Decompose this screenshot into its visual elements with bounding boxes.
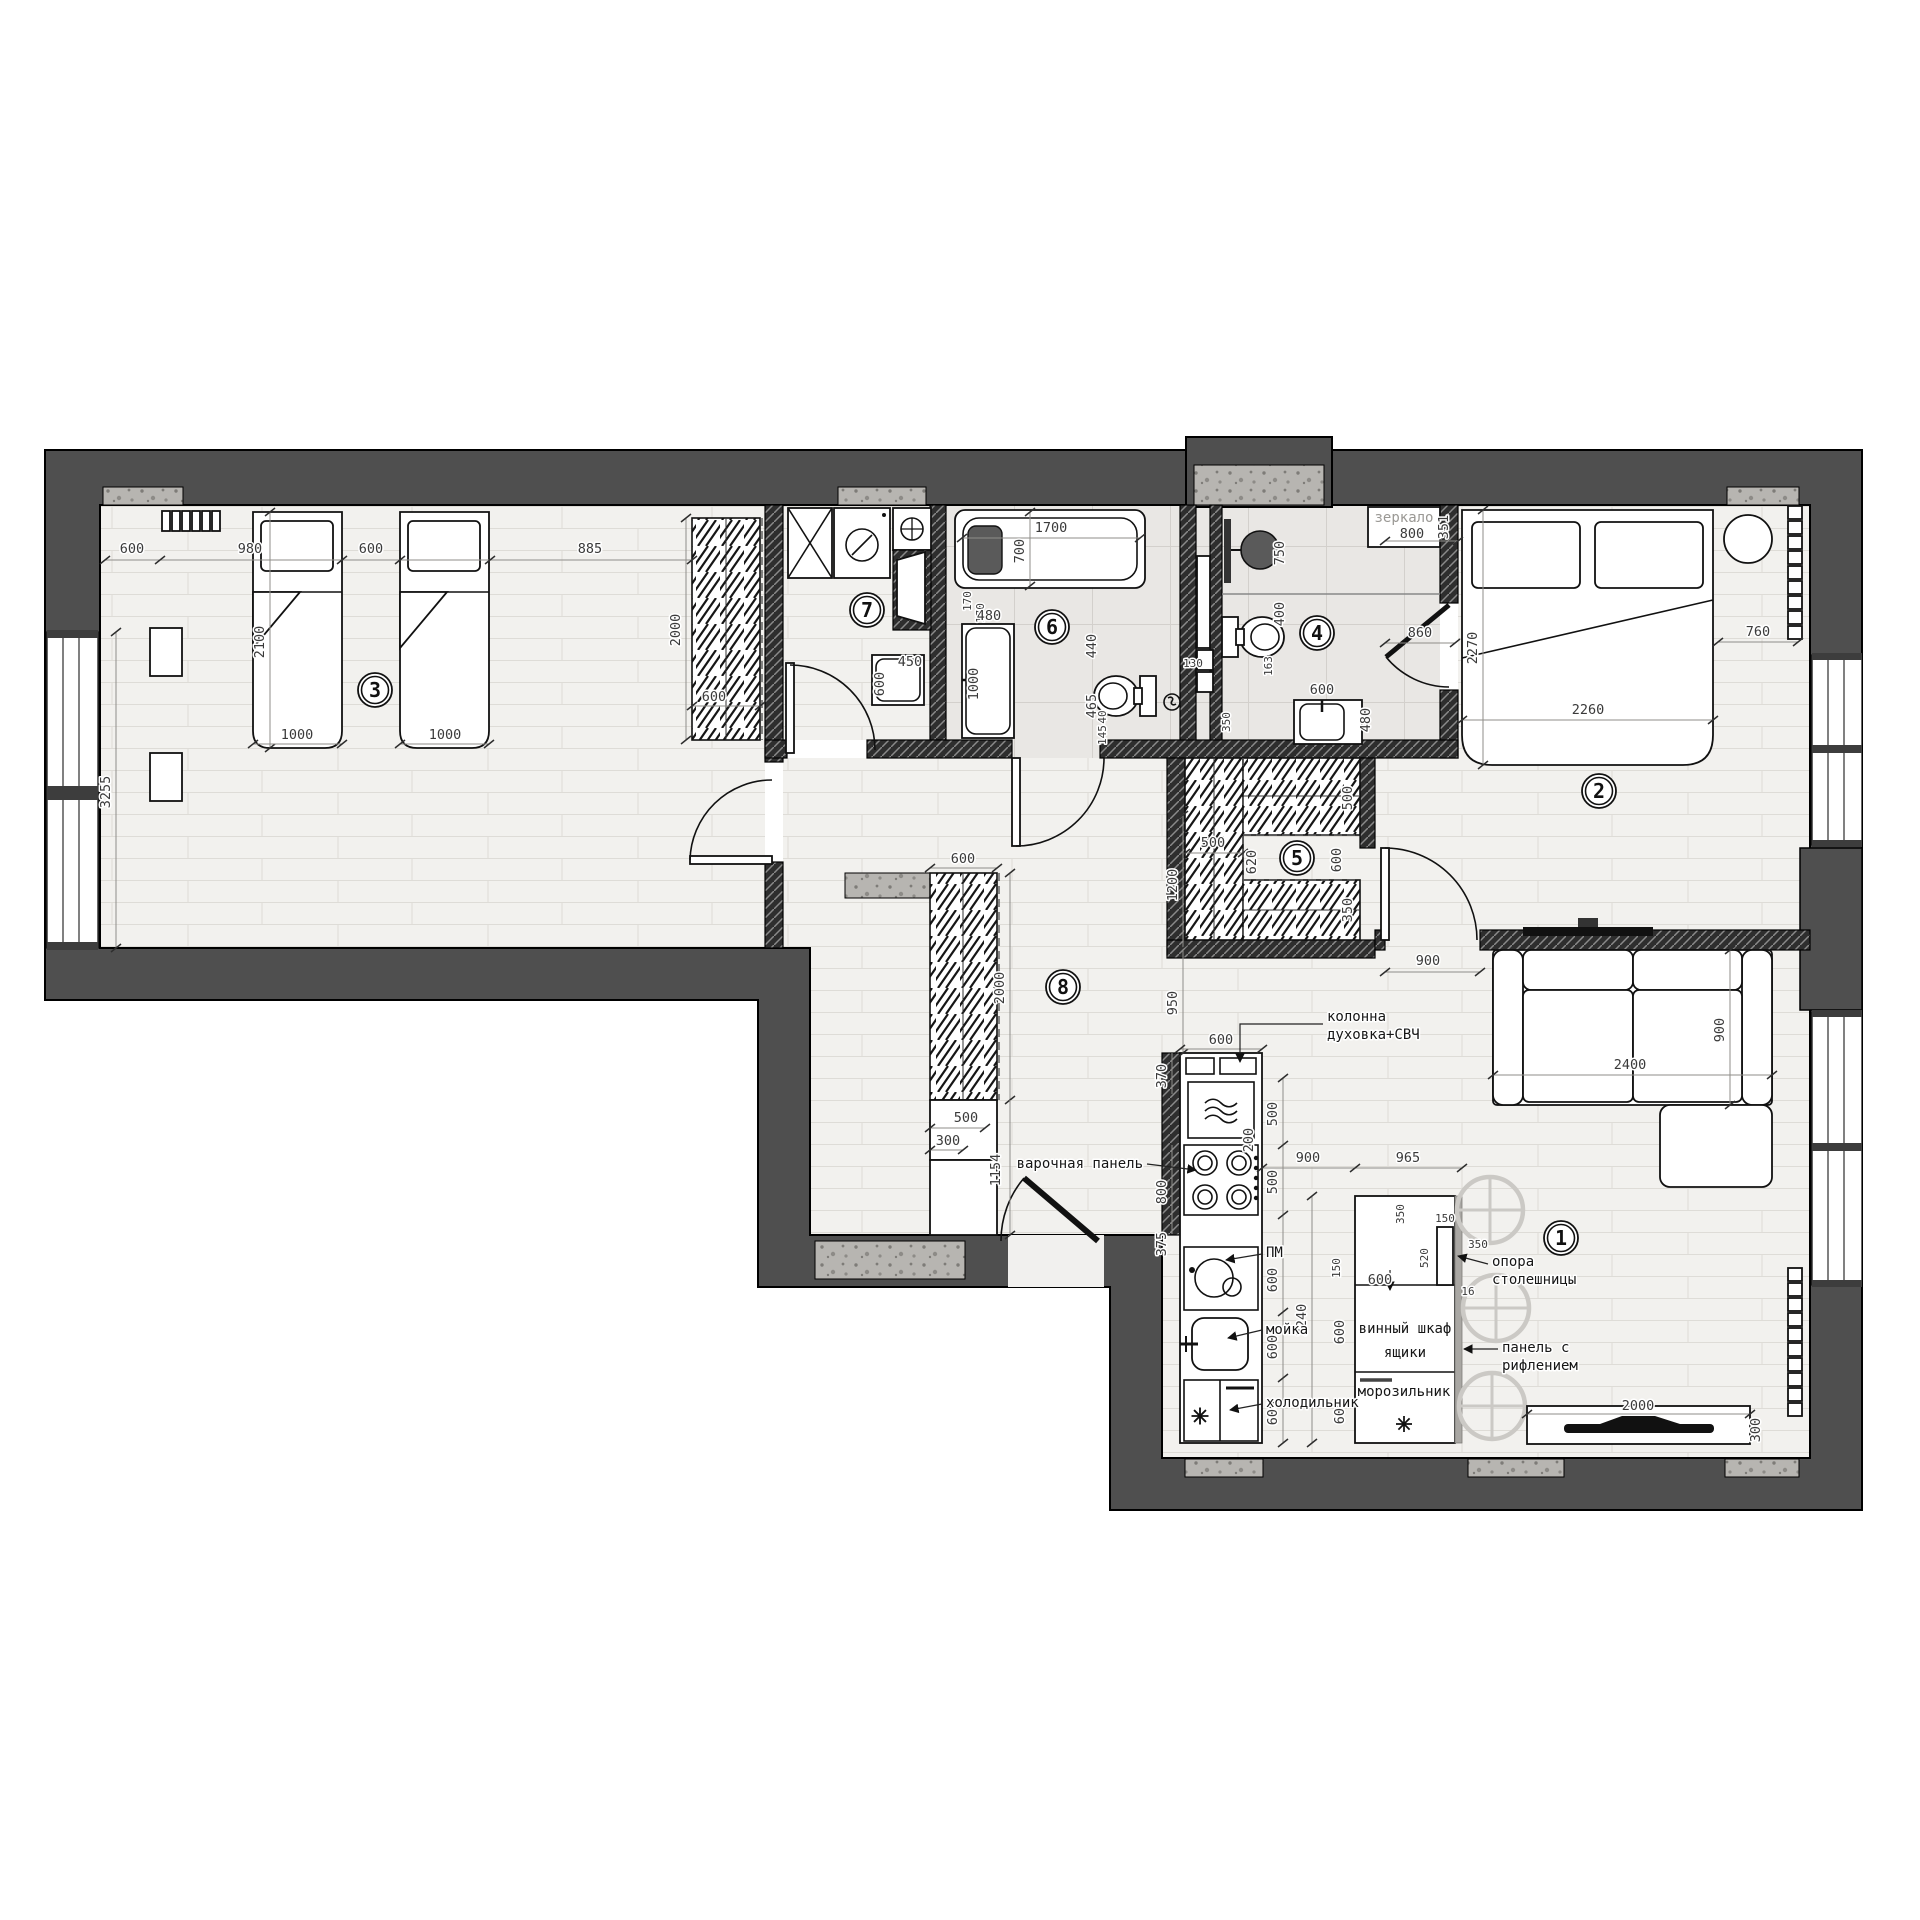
dim: 200 [1241, 1128, 1257, 1152]
dim: 351 [1436, 515, 1452, 539]
label-hob: варочная панель [1017, 1156, 1143, 1172]
label-drawers: ящики [1384, 1345, 1426, 1361]
vanity-bath2 [1294, 700, 1362, 744]
wardrobe-hall [930, 873, 999, 1100]
dim: 450 [898, 654, 922, 670]
dim: 2270 [1465, 632, 1481, 665]
pier [1727, 487, 1799, 505]
dim: 1000 [966, 668, 982, 701]
dim: 600 [951, 851, 975, 867]
room-number: 2 [1593, 779, 1605, 803]
dim: 600 [359, 541, 383, 557]
dim: 600 [120, 541, 144, 557]
dim: 163 [1262, 656, 1275, 676]
toilet-bath1 [1094, 676, 1156, 716]
dim: 900 [1416, 953, 1440, 969]
dim: 500 [1265, 1170, 1281, 1194]
pier [1194, 465, 1324, 505]
dim: 760 [1746, 624, 1770, 640]
dim: 1200 [1165, 869, 1181, 902]
dim: 800 [1400, 526, 1424, 542]
dim: 370 [1154, 1064, 1170, 1088]
label-support-2: столешницы [1492, 1272, 1576, 1288]
dim: 600 [872, 672, 888, 696]
bathtub-faucet [968, 526, 1002, 574]
dim: 860 [1408, 625, 1432, 641]
dim: 480 [1358, 708, 1374, 732]
dim: 1000 [281, 727, 314, 743]
dim: 480 [977, 608, 1001, 624]
dim: 145 [1096, 725, 1109, 745]
dim: 885 [578, 541, 602, 557]
bedside-table [1724, 515, 1772, 563]
label-wine: винный шкаф [1359, 1321, 1452, 1337]
room-badge-3: 3 [358, 673, 392, 707]
pier [838, 487, 926, 505]
pier [815, 1241, 965, 1279]
room-badge-5: 5 [1280, 841, 1314, 875]
vent-niche [893, 508, 931, 550]
dim: 1700 [1035, 520, 1068, 536]
room-badge-7: 7 [850, 593, 884, 627]
dim: 300 [1748, 1418, 1764, 1442]
bed-double [1462, 510, 1713, 765]
wall-south-band-c [1100, 740, 1458, 758]
dim: 800 [1154, 1180, 1170, 1204]
floor-vestibule [1360, 758, 1480, 948]
dim: 300 [936, 1133, 960, 1149]
dim: 600 [1265, 1268, 1281, 1292]
room-number: 4 [1311, 621, 1323, 645]
side-table [150, 753, 182, 801]
dim: 350 [1340, 898, 1356, 922]
dim: 965 [1396, 1150, 1420, 1166]
wall-wardrobe-south [1167, 940, 1375, 958]
label-freezer: морозильник [1358, 1384, 1451, 1400]
side-table [150, 628, 182, 676]
wall-kids-east-upper [765, 505, 783, 762]
pillow [1595, 522, 1703, 588]
dim: 700 [1012, 539, 1028, 563]
bed-single-2 [400, 512, 489, 748]
dim: 600 [1332, 1320, 1348, 1344]
label-support-1: опора [1492, 1254, 1534, 1270]
washing-machine [834, 508, 890, 578]
dim: 500 [1340, 786, 1356, 810]
dim: 750 [1272, 541, 1288, 565]
room-badge-8: 8 [1046, 970, 1080, 1004]
dim: 600 [1265, 1335, 1281, 1359]
dim: 950 [1165, 991, 1181, 1015]
dim: 980 [238, 541, 262, 557]
hall-cabinet-lower [930, 1160, 997, 1235]
room-number: 6 [1046, 615, 1058, 639]
dim: 900 [1296, 1150, 1320, 1166]
dim: 2260 [1572, 702, 1605, 718]
dim: 350 [1394, 1204, 1407, 1224]
dim: 400 [1272, 602, 1288, 626]
dim: 500 [1201, 835, 1225, 851]
label-column-1: колонна [1327, 1009, 1386, 1025]
window-left [47, 630, 98, 950]
dim: 600 [702, 689, 726, 705]
wardrobe-kids [692, 518, 762, 740]
dim: 900 [1712, 1018, 1728, 1042]
label-sink: мойка [1266, 1322, 1308, 1338]
window-pier [1800, 848, 1862, 1010]
label-dishwasher: ПМ [1266, 1245, 1283, 1261]
hall-cabinet-upper [930, 1100, 997, 1160]
dim: 375 [1154, 1232, 1170, 1256]
dim: 2100 [252, 626, 268, 659]
room-badge-1: 1 [1544, 1221, 1578, 1255]
pier [103, 487, 183, 505]
dim: 170 [961, 591, 974, 611]
dim: 500 [954, 1110, 978, 1126]
pier [845, 873, 930, 898]
dim: 350 [1468, 1238, 1488, 1251]
dim: 150 [1435, 1212, 1455, 1225]
window-right-bedroom [1812, 653, 1862, 847]
dim: 440 [1084, 634, 1100, 658]
dim: 600 [1329, 848, 1345, 872]
dim: 600 [1368, 1272, 1392, 1288]
label-fridge: холодильник [1266, 1395, 1359, 1411]
label-fluted-1: панель с [1502, 1340, 1569, 1356]
dim: 130 [1183, 657, 1203, 670]
dim: 500 [1265, 1102, 1281, 1126]
room-number: 5 [1291, 846, 1303, 870]
room-number: 8 [1057, 975, 1069, 999]
dim: 350 [1220, 712, 1233, 732]
dim: 2400 [1614, 1057, 1647, 1073]
room-number: 1 [1555, 1226, 1567, 1250]
pier [1468, 1459, 1564, 1477]
dim: 150 [1330, 1258, 1343, 1278]
pillow [1472, 522, 1580, 588]
wall-wardrobe-west [1167, 758, 1185, 955]
dim: 600 [1209, 1032, 1233, 1048]
window-right-living [1812, 1010, 1862, 1287]
dim: 16 [1461, 1285, 1474, 1298]
dim: 2000 [992, 972, 1008, 1005]
dim: 1154 [988, 1154, 1004, 1187]
label-mirror: зеркало [1374, 510, 1433, 526]
dim: 520 [1418, 1248, 1431, 1268]
room-number: 7 [861, 598, 873, 622]
wall-laundry-bath [930, 505, 946, 740]
dim: 1000 [429, 727, 462, 743]
dim: 3255 [98, 776, 114, 809]
countertop-support [1437, 1227, 1453, 1285]
dim: 2000 [1622, 1398, 1655, 1414]
shower-rail [1224, 519, 1231, 583]
dim: 2000 [668, 614, 684, 647]
wall-south-band-b [867, 740, 1012, 758]
room-badge-4: 4 [1300, 616, 1334, 650]
chase-panel [893, 550, 931, 630]
room-badge-6: 6 [1035, 610, 1069, 644]
pier [1725, 1459, 1799, 1477]
dim: 620 [1244, 850, 1260, 874]
dim: 600 [1310, 682, 1334, 698]
wall-south-band-a [765, 740, 787, 758]
kitchen-column [1180, 1053, 1262, 1443]
floor-plan-page: 600 980 600 885 3255 2100 1000 1000 2000… [0, 0, 1920, 1920]
wall-kids-east-lower [765, 862, 783, 948]
pier [1185, 1459, 1263, 1477]
dim: 40 [1096, 710, 1109, 723]
floor-plan-canvas: 600 980 600 885 3255 2100 1000 1000 2000… [0, 0, 1920, 1920]
sofa-ottoman [1660, 1105, 1772, 1187]
wall-wardrobe-east [1360, 758, 1375, 848]
radiator-bedroom [1788, 506, 1802, 639]
duct-shaft [788, 508, 832, 578]
room-badge-2: 2 [1582, 774, 1616, 808]
niche-cabinet [1197, 556, 1213, 692]
label-column-2: духовка+СВЧ [1327, 1027, 1420, 1043]
label-fluted-2: рифлением [1502, 1358, 1578, 1374]
wall-bath1-east [1180, 505, 1196, 758]
room-number: 3 [369, 678, 381, 702]
